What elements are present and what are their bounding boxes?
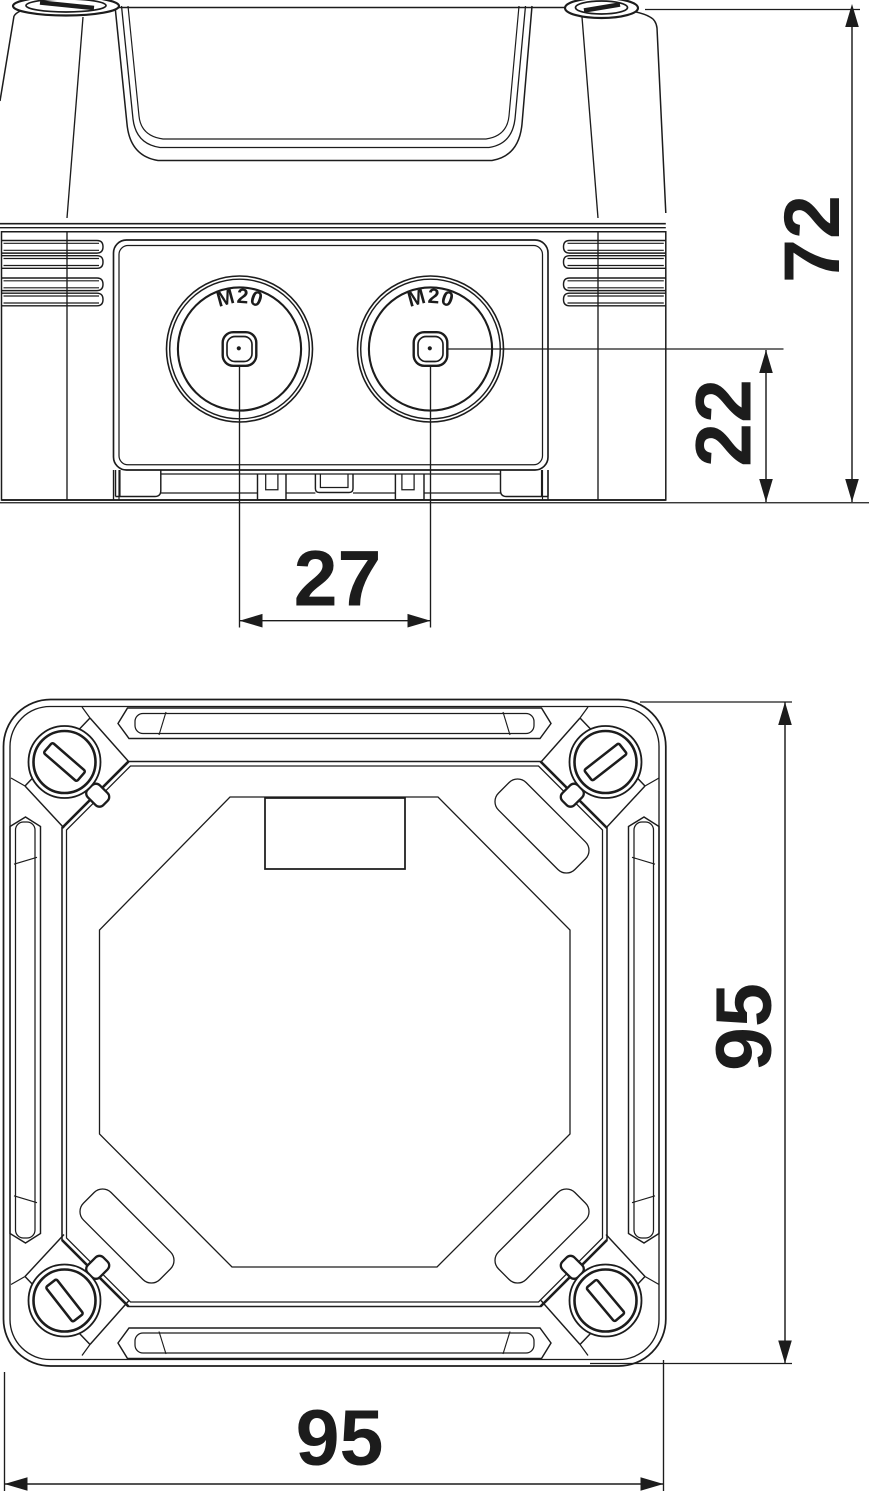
svg-text:95: 95 xyxy=(296,1393,384,1482)
svg-text:22: 22 xyxy=(679,379,768,467)
svg-text:72: 72 xyxy=(767,195,856,283)
svg-text:27: 27 xyxy=(294,534,382,623)
svg-text:95: 95 xyxy=(699,983,788,1071)
